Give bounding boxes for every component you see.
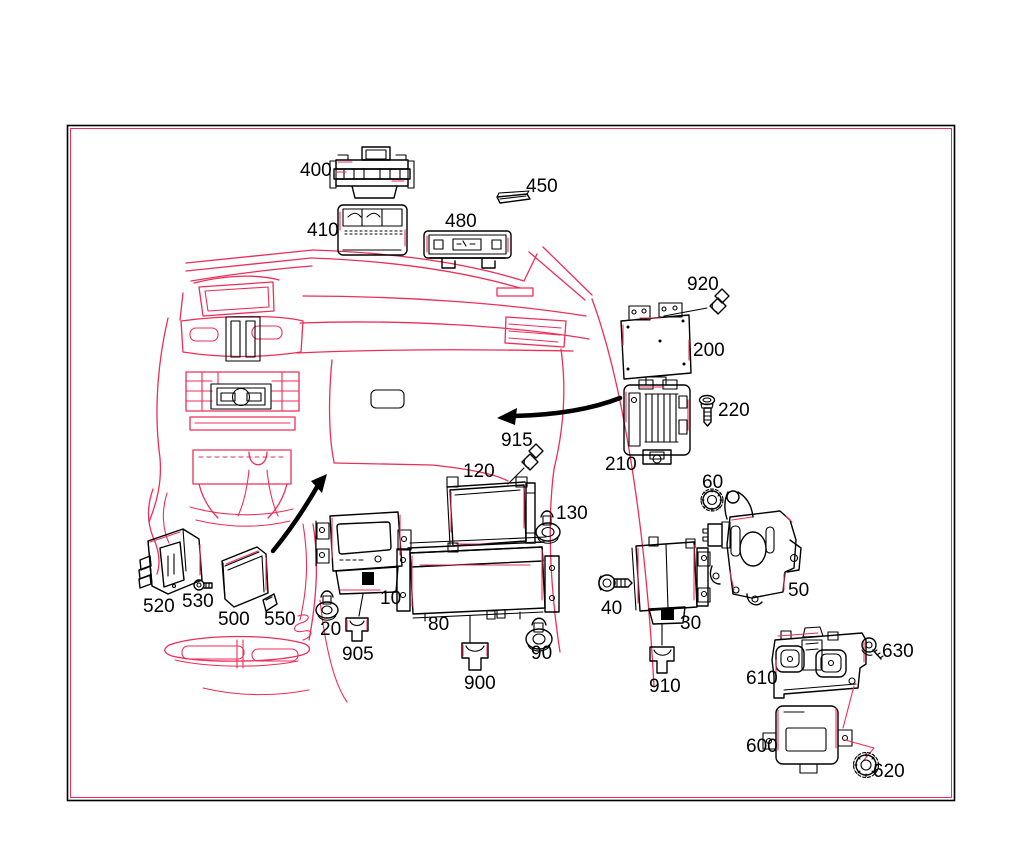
part-label-900: 900 xyxy=(464,674,496,693)
part-900-drawing xyxy=(462,643,488,670)
part-400-drawing xyxy=(330,147,414,198)
part-label-550: 550 xyxy=(264,610,296,629)
part-label-915: 915 xyxy=(501,431,533,450)
part-label-40: 40 xyxy=(601,599,622,618)
part-label-130: 130 xyxy=(556,504,588,523)
part-500-drawing xyxy=(222,547,268,607)
part-label-500: 500 xyxy=(218,610,250,629)
part-label-90: 90 xyxy=(531,644,552,663)
part-label-60: 60 xyxy=(702,473,723,492)
part-label-10: 10 xyxy=(380,589,401,608)
part-label-620: 620 xyxy=(873,762,905,781)
part-label-530: 530 xyxy=(182,592,214,611)
part-label-905: 905 xyxy=(342,645,374,664)
part-label-200: 200 xyxy=(693,341,725,360)
dashboard-sketch xyxy=(149,247,655,702)
part-label-20: 20 xyxy=(320,620,341,639)
part-410-drawing xyxy=(338,205,407,255)
part-610-drawing xyxy=(772,627,866,728)
diagram-canvas xyxy=(0,0,1024,854)
part-520-drawing xyxy=(139,529,202,594)
part-label-910: 910 xyxy=(649,677,681,696)
part-480-drawing xyxy=(424,231,511,268)
installation-arrow-left xyxy=(497,398,620,425)
part-label-600: 600 xyxy=(746,737,778,756)
part-80-drawing xyxy=(397,537,559,642)
part-40-drawing xyxy=(599,575,632,591)
part-label-120: 120 xyxy=(463,462,495,481)
part-label-520: 520 xyxy=(143,597,175,616)
part-label-630: 630 xyxy=(882,642,914,661)
part-label-50: 50 xyxy=(788,581,809,600)
diagram-frame xyxy=(68,126,955,801)
part-630-drawing xyxy=(862,638,883,659)
part-220-drawing xyxy=(700,396,715,427)
part-905-drawing xyxy=(346,618,368,641)
part-label-30: 30 xyxy=(680,614,701,633)
part-label-410: 410 xyxy=(307,221,339,240)
part-200-drawing xyxy=(621,303,691,385)
part-label-220: 220 xyxy=(718,401,750,420)
part-label-210: 210 xyxy=(605,455,637,474)
part-label-450: 450 xyxy=(526,177,558,196)
part-label-400: 400 xyxy=(300,161,332,180)
part-label-80: 80 xyxy=(428,615,449,634)
part-20-drawing xyxy=(316,591,338,620)
part-210-drawing xyxy=(624,380,690,464)
part-label-610: 610 xyxy=(746,669,778,688)
glovebox-marker xyxy=(371,390,404,408)
part-label-480: 480 xyxy=(445,212,477,231)
part-50-drawing xyxy=(703,491,801,605)
part-600-drawing xyxy=(763,706,874,773)
part-label-920: 920 xyxy=(687,275,719,294)
parts-diagram-page: 4004104504809202002209152101201306050102… xyxy=(0,0,1024,854)
